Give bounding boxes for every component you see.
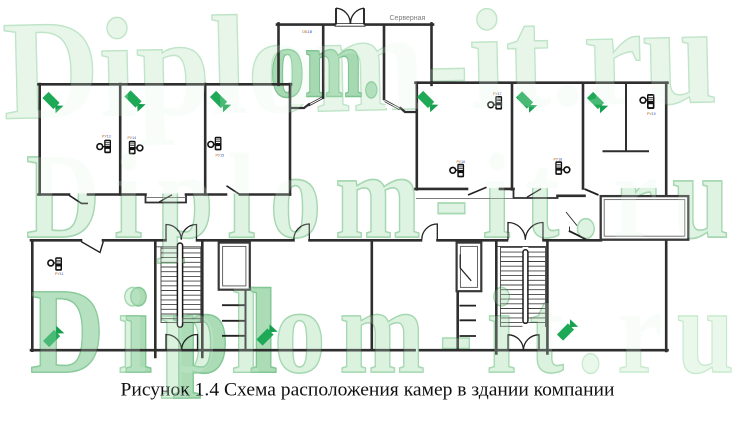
svg-text:Diplom-it.ru: Diplom-it.ru (26, 130, 729, 264)
svg-text:Diplom-it.ru: Diplom-it.ru (1, 0, 719, 150)
svg-text:РУ15: РУ15 (216, 154, 225, 158)
svg-text:Diplom-it.ru: Diplom-it.ru (30, 265, 734, 399)
